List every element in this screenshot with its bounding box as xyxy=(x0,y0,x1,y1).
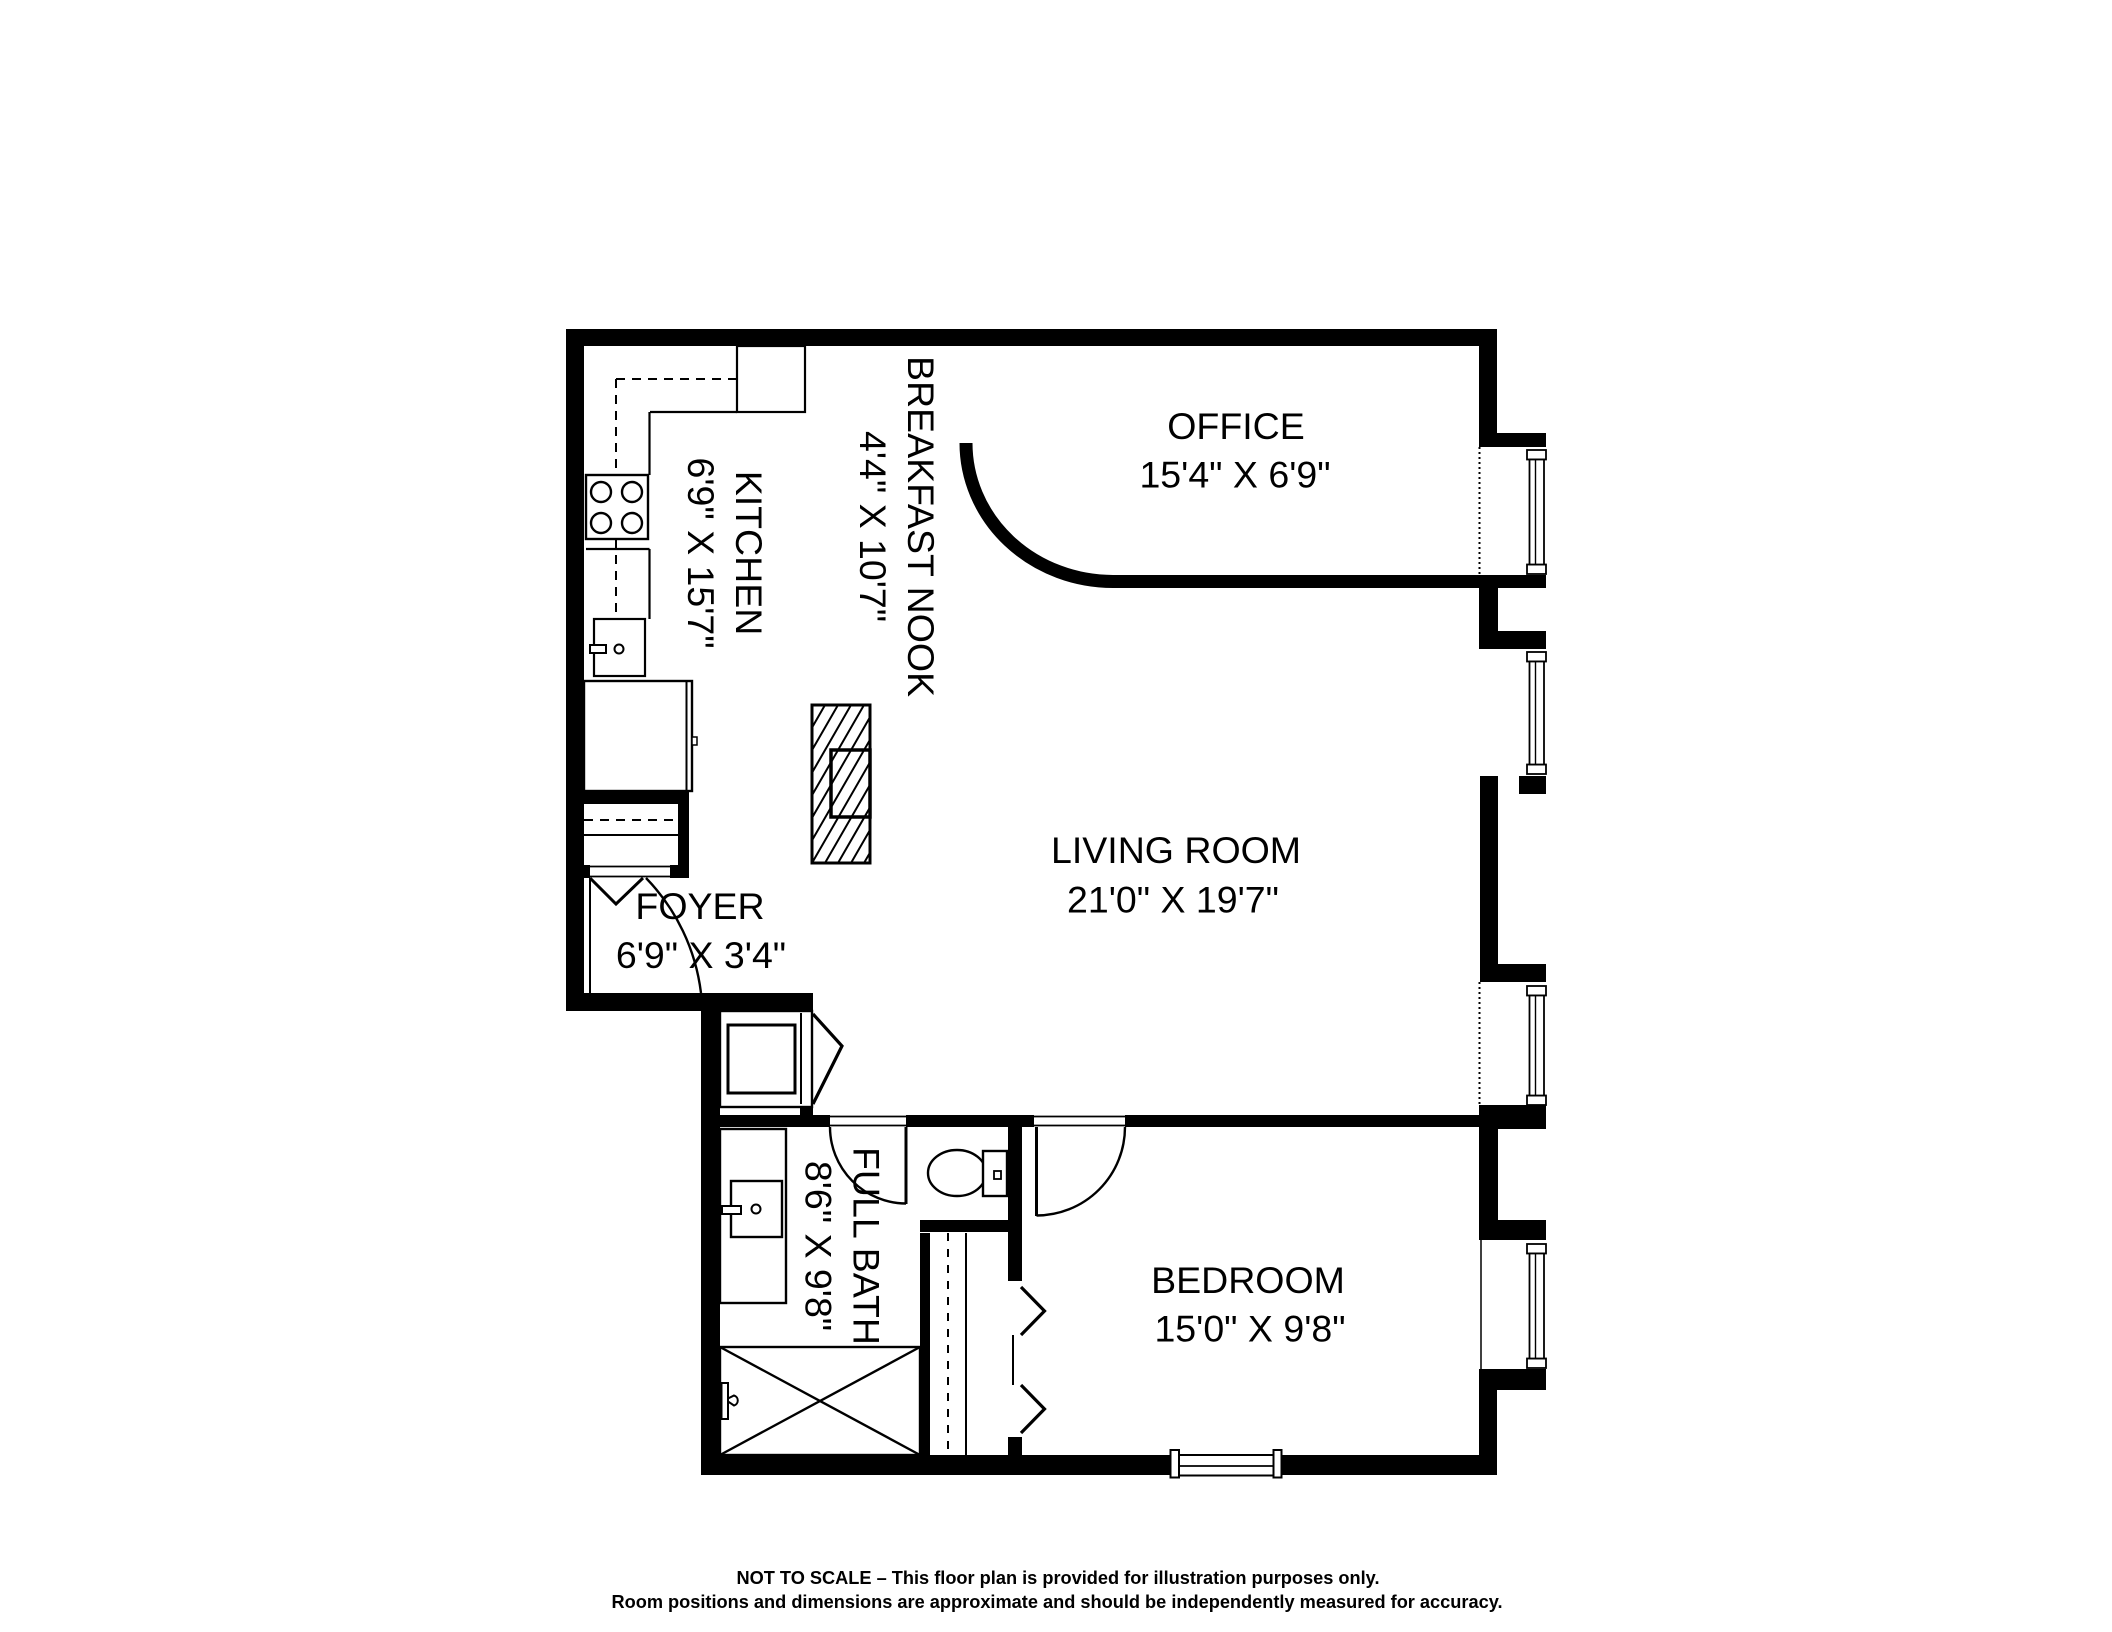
svg-text:FOYER: FOYER xyxy=(635,885,764,927)
svg-text:LIVING ROOM: LIVING ROOM xyxy=(1051,829,1301,871)
svg-text:15'4" X 6'9": 15'4" X 6'9" xyxy=(1139,454,1330,496)
svg-text:BREAKFAST NOOK: BREAKFAST NOOK xyxy=(900,356,942,697)
svg-text:4'4" X 10'7": 4'4" X 10'7" xyxy=(852,431,894,622)
svg-text:FULL BATH: FULL BATH xyxy=(846,1147,888,1345)
svg-text:KITCHEN: KITCHEN xyxy=(728,471,770,636)
svg-text:8'6" X 9'8": 8'6" X 9'8" xyxy=(798,1161,840,1331)
svg-text:OFFICE: OFFICE xyxy=(1167,405,1305,447)
svg-text:21'0" X 19'7": 21'0" X 19'7" xyxy=(1067,879,1279,921)
svg-text:6'9" X 15'7": 6'9" X 15'7" xyxy=(680,457,722,648)
svg-text:Room positions and dimensions: Room positions and dimensions are approx… xyxy=(611,1592,1502,1612)
svg-text:15'0" X 9'8": 15'0" X 9'8" xyxy=(1154,1308,1345,1350)
svg-text:NOT TO SCALE – This floor plan: NOT TO SCALE – This floor plan is provid… xyxy=(736,1568,1379,1588)
svg-text:BEDROOM: BEDROOM xyxy=(1151,1259,1345,1301)
svg-text:6'9" X 3'4": 6'9" X 3'4" xyxy=(616,934,786,976)
